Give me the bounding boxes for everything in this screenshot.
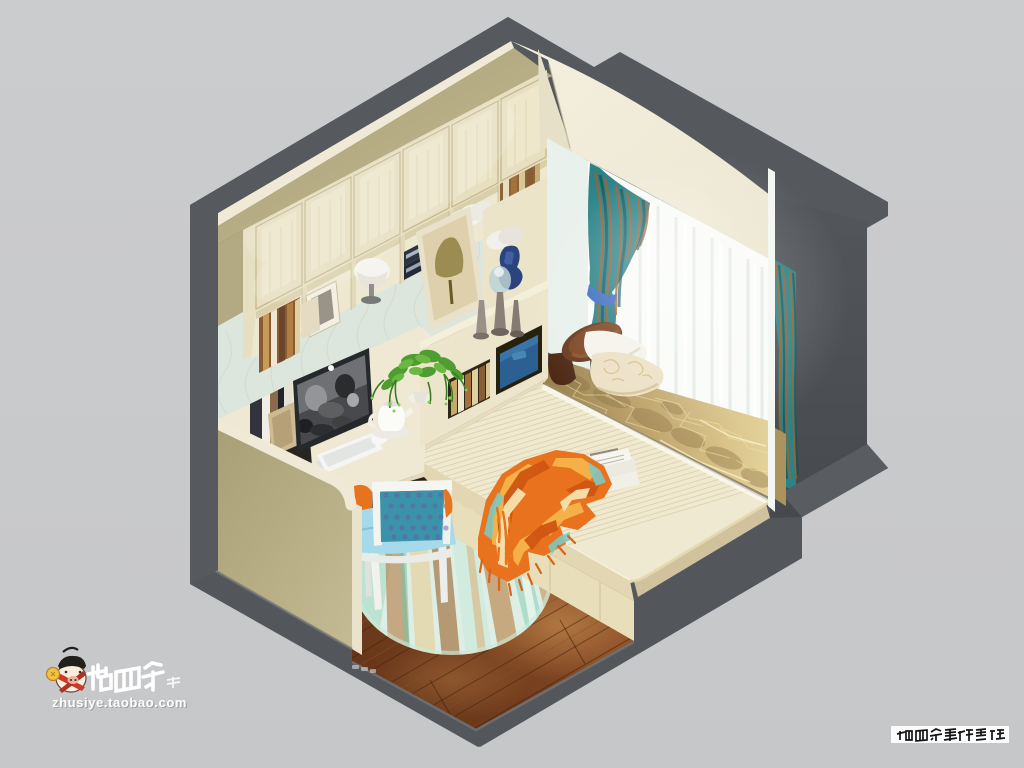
- svg-text:zhusiye.taobao.com: zhusiye.taobao.com: [52, 695, 187, 710]
